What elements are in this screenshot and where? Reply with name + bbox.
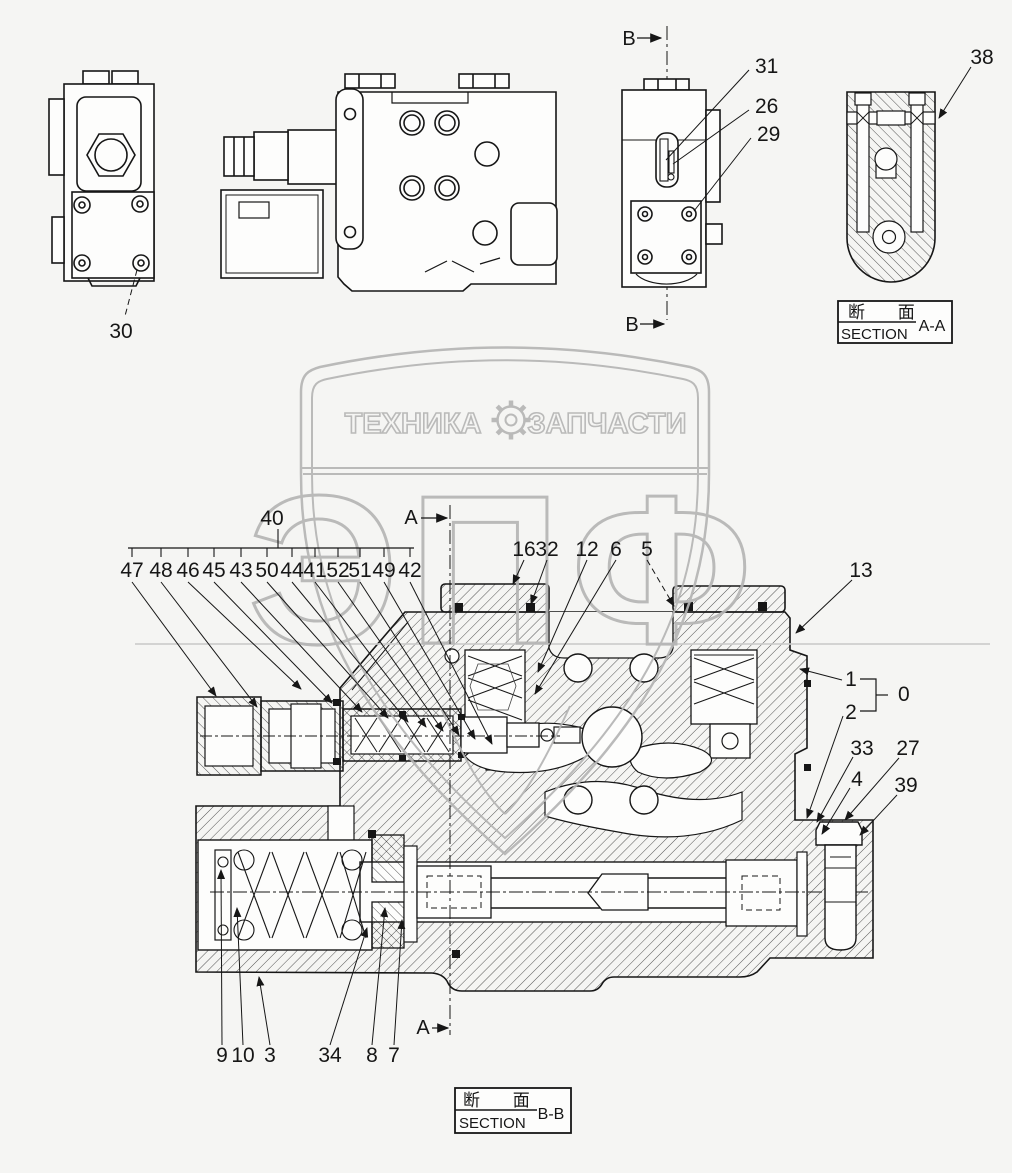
watermark-text-right: ЗАПЧАСТИ	[528, 408, 687, 440]
callout-44: 44	[280, 559, 304, 582]
callout-42: 42	[398, 559, 421, 582]
callout-47: 47	[120, 559, 143, 582]
view-side-b	[622, 26, 751, 324]
callout-27: 27	[896, 737, 919, 760]
view-front	[221, 74, 557, 291]
view-side-left	[49, 71, 154, 316]
callout-34: 34	[318, 1044, 342, 1067]
view-section-aa	[847, 67, 971, 282]
parts-diagram-page: 30 B B 31 26 29	[0, 0, 1012, 1173]
callout-41: 41	[303, 559, 326, 582]
callout-3: 3	[264, 1044, 276, 1067]
callout-7: 7	[388, 1044, 400, 1067]
callout-9: 9	[216, 1044, 228, 1067]
section-aa-cn: 断 面	[848, 303, 929, 322]
section-bb-en: SECTION	[459, 1115, 526, 1132]
section-letter-a-top: A	[404, 507, 418, 529]
callout-30: 30	[109, 320, 132, 343]
section-bb-ref: B-B	[538, 1106, 565, 1123]
callout-31: 31	[755, 55, 778, 78]
callout-49: 49	[372, 559, 395, 582]
callout-13: 13	[849, 559, 872, 582]
callout-5: 5	[641, 538, 653, 561]
callout-26: 26	[755, 95, 778, 118]
section-aa-en: SECTION	[841, 326, 908, 343]
callout-45: 45	[202, 559, 225, 582]
callout-43: 43	[229, 559, 252, 582]
callout-4: 4	[851, 768, 863, 791]
section-letter-a-bottom: A	[416, 1017, 430, 1039]
callout-46: 46	[176, 559, 199, 582]
callout-1: 1	[845, 668, 857, 691]
callout-40: 40	[260, 507, 283, 530]
callout-10: 10	[231, 1044, 254, 1067]
callout-12: 12	[575, 538, 598, 561]
watermark-text-left: ТЕХНИКА	[345, 408, 482, 440]
section-letter-b-top: B	[622, 28, 635, 50]
callout-2: 2	[845, 701, 857, 724]
callout-0: 0	[898, 683, 910, 706]
callout-16: 16	[512, 538, 535, 561]
section-aa-ref: A-A	[919, 318, 946, 335]
drawing-canvas: 30 B B 31 26 29	[0, 0, 1012, 1173]
gear-icon	[492, 401, 531, 440]
callout-33: 33	[850, 737, 873, 760]
callout-6: 6	[610, 538, 622, 561]
callout-48: 48	[149, 559, 172, 582]
section-letter-b-bottom: B	[625, 314, 638, 336]
callout-50: 50	[255, 559, 278, 582]
callout-8: 8	[366, 1044, 378, 1067]
callout-51: 51	[348, 559, 371, 582]
callout-38: 38	[970, 46, 993, 69]
section-bb-cn: 断 面	[463, 1091, 544, 1110]
callout-52: 52	[326, 559, 349, 582]
callout-29: 29	[757, 123, 780, 146]
callout-32: 32	[535, 538, 558, 561]
callout-39: 39	[894, 774, 917, 797]
